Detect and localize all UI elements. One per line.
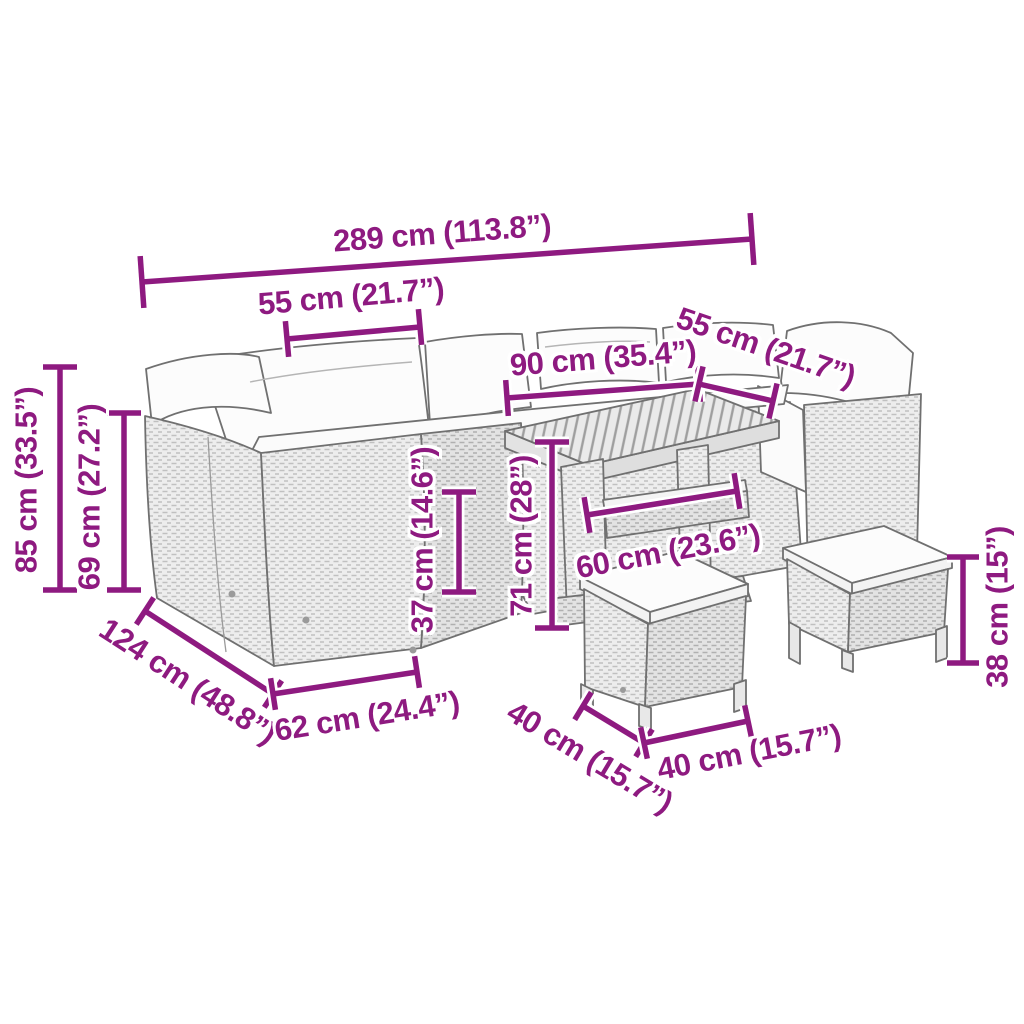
dim-line-backrest-height	[107, 413, 141, 590]
dim-line-stool-height	[947, 557, 979, 663]
dimension-label-seat-height: 37 cm (14.6”)	[407, 447, 438, 634]
dimension-label-backrest-height: 69 cm (27.2”)	[74, 404, 105, 591]
dim-line-table-height	[535, 442, 569, 628]
dim-line-seat-width-right	[695, 366, 777, 418]
dimension-label-table-height: 71 cm (28”)	[506, 455, 537, 617]
dim-line-seat-height	[442, 492, 476, 592]
dimension-label-sofa-height: 85 cm (33.5”)	[11, 387, 42, 574]
dimension-diagram: 289 cm (113.8”) 55 cm (21.7”) 90 cm (35.…	[0, 0, 1024, 1024]
dimension-label-stool-height: 38 cm (15”)	[982, 526, 1013, 688]
